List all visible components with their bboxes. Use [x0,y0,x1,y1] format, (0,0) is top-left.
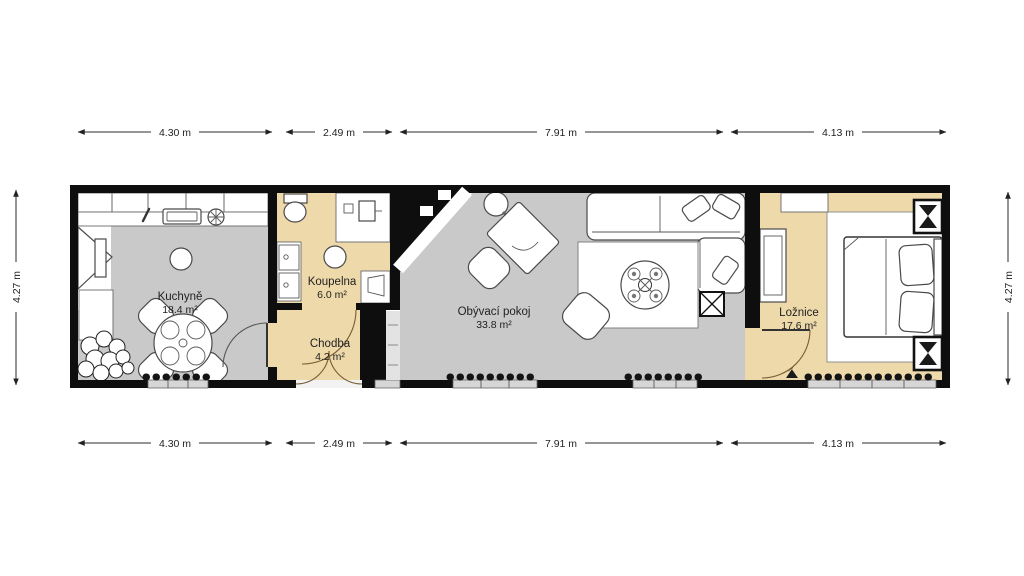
floor-plan-canvas: Kuchyně 18.4 m² Koupelna 6.0 m² Chodba 4… [0,0,1024,576]
living-area: 33.8 m² [476,319,512,331]
wall-kitchen-hall [268,367,277,388]
kitchen-tall-unit [95,239,106,277]
kitchen-window [148,380,208,388]
dim-bottom-kitchen: 4.30 m [159,438,191,450]
dim-top-living: 7.91 m [545,127,577,139]
bedroom-area: 17.6 m² [781,320,817,332]
bathroom-area: 6.0 m² [317,289,347,301]
outer-wall-top [70,185,950,193]
hall-label: Chodba [310,338,351,350]
hall-corner-window [375,380,400,388]
bedroom-label: Ložnice [779,307,819,319]
dim-top-kitchen: 4.30 m [159,127,191,139]
dim-left-height: 4.27 m [11,271,23,303]
dim-top-bedroom: 4.13 m [822,127,854,139]
wall-hall-living [360,310,386,388]
bed-pillow [899,291,935,333]
toilet-bowl [284,202,306,222]
dim-bottom-hall: 2.49 m [323,438,355,450]
kitchen-stool [170,248,192,270]
dim-top-hall: 2.49 m [323,127,355,139]
kitchen-sink [163,209,201,224]
outer-wall-left [70,185,78,388]
diagonal-step [420,206,433,216]
wall-kitchen-bath [268,185,277,323]
wall-living-bedroom [745,193,760,328]
kitchen-label: Kuchyně [158,291,203,303]
dim-right-height: 4.27 m [1003,271,1015,303]
hall-area: 4.2 m² [315,351,345,363]
living-window-right [633,380,697,388]
nightstand-top [914,200,942,233]
floor-plan-drawing: Kuchyně 18.4 m² Koupelna 6.0 m² Chodba 4… [0,0,1024,576]
bathroom-boiler [359,201,375,221]
living-label: Obývací pokoj [458,306,531,318]
bedroom-shelf [781,193,828,212]
wall-bath-hall-left [268,303,302,310]
bed-pillow [899,244,935,286]
dimension-left: 4.27 m [8,190,24,385]
shower-tray [361,271,390,303]
living-window-left [453,380,537,388]
dining-table [154,314,212,372]
dim-bottom-living: 7.91 m [545,438,577,450]
dimensions-top: 4.30 m 2.49 m 7.91 m 4.13 m [78,125,946,139]
diagonal-step [438,190,451,200]
bathroom-cabinet [277,242,301,301]
headboard [934,239,942,335]
dim-bottom-bedroom: 4.13 m [822,438,854,450]
nightstand-bottom [914,337,942,370]
bathroom-sink [324,246,346,268]
kitchen-area: 18.4 m² [162,304,198,316]
dimensions-bottom: 4.30 m 2.49 m 7.91 m 4.13 m [78,436,946,450]
outer-wall-right [942,185,950,388]
wall-bath-hall-right [356,303,390,310]
bathroom-label: Koupelna [308,276,357,288]
dimension-right: 4.27 m [1000,192,1016,385]
